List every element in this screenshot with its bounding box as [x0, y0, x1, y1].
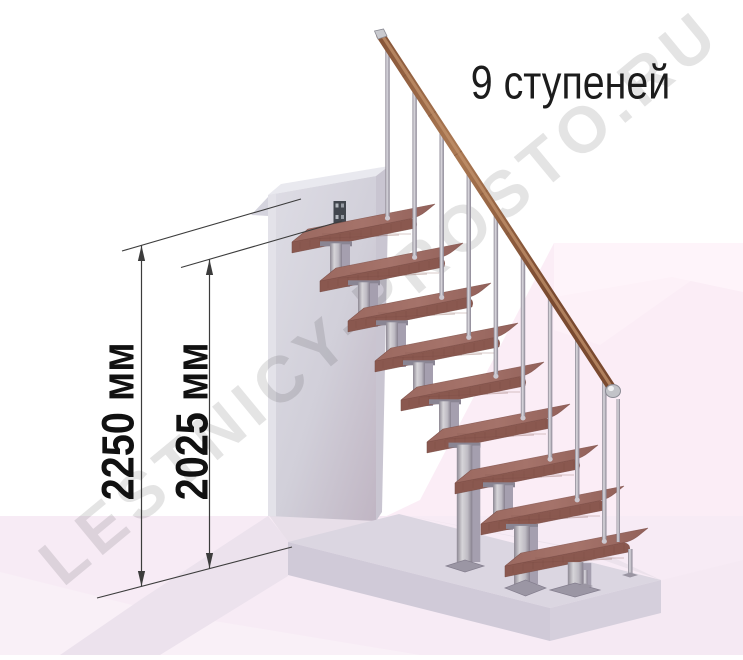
svg-text:2250 мм: 2250 мм	[93, 342, 144, 500]
svg-text:2025 мм: 2025 мм	[167, 342, 218, 500]
svg-text:9 ступеней: 9 ступеней	[471, 55, 671, 108]
